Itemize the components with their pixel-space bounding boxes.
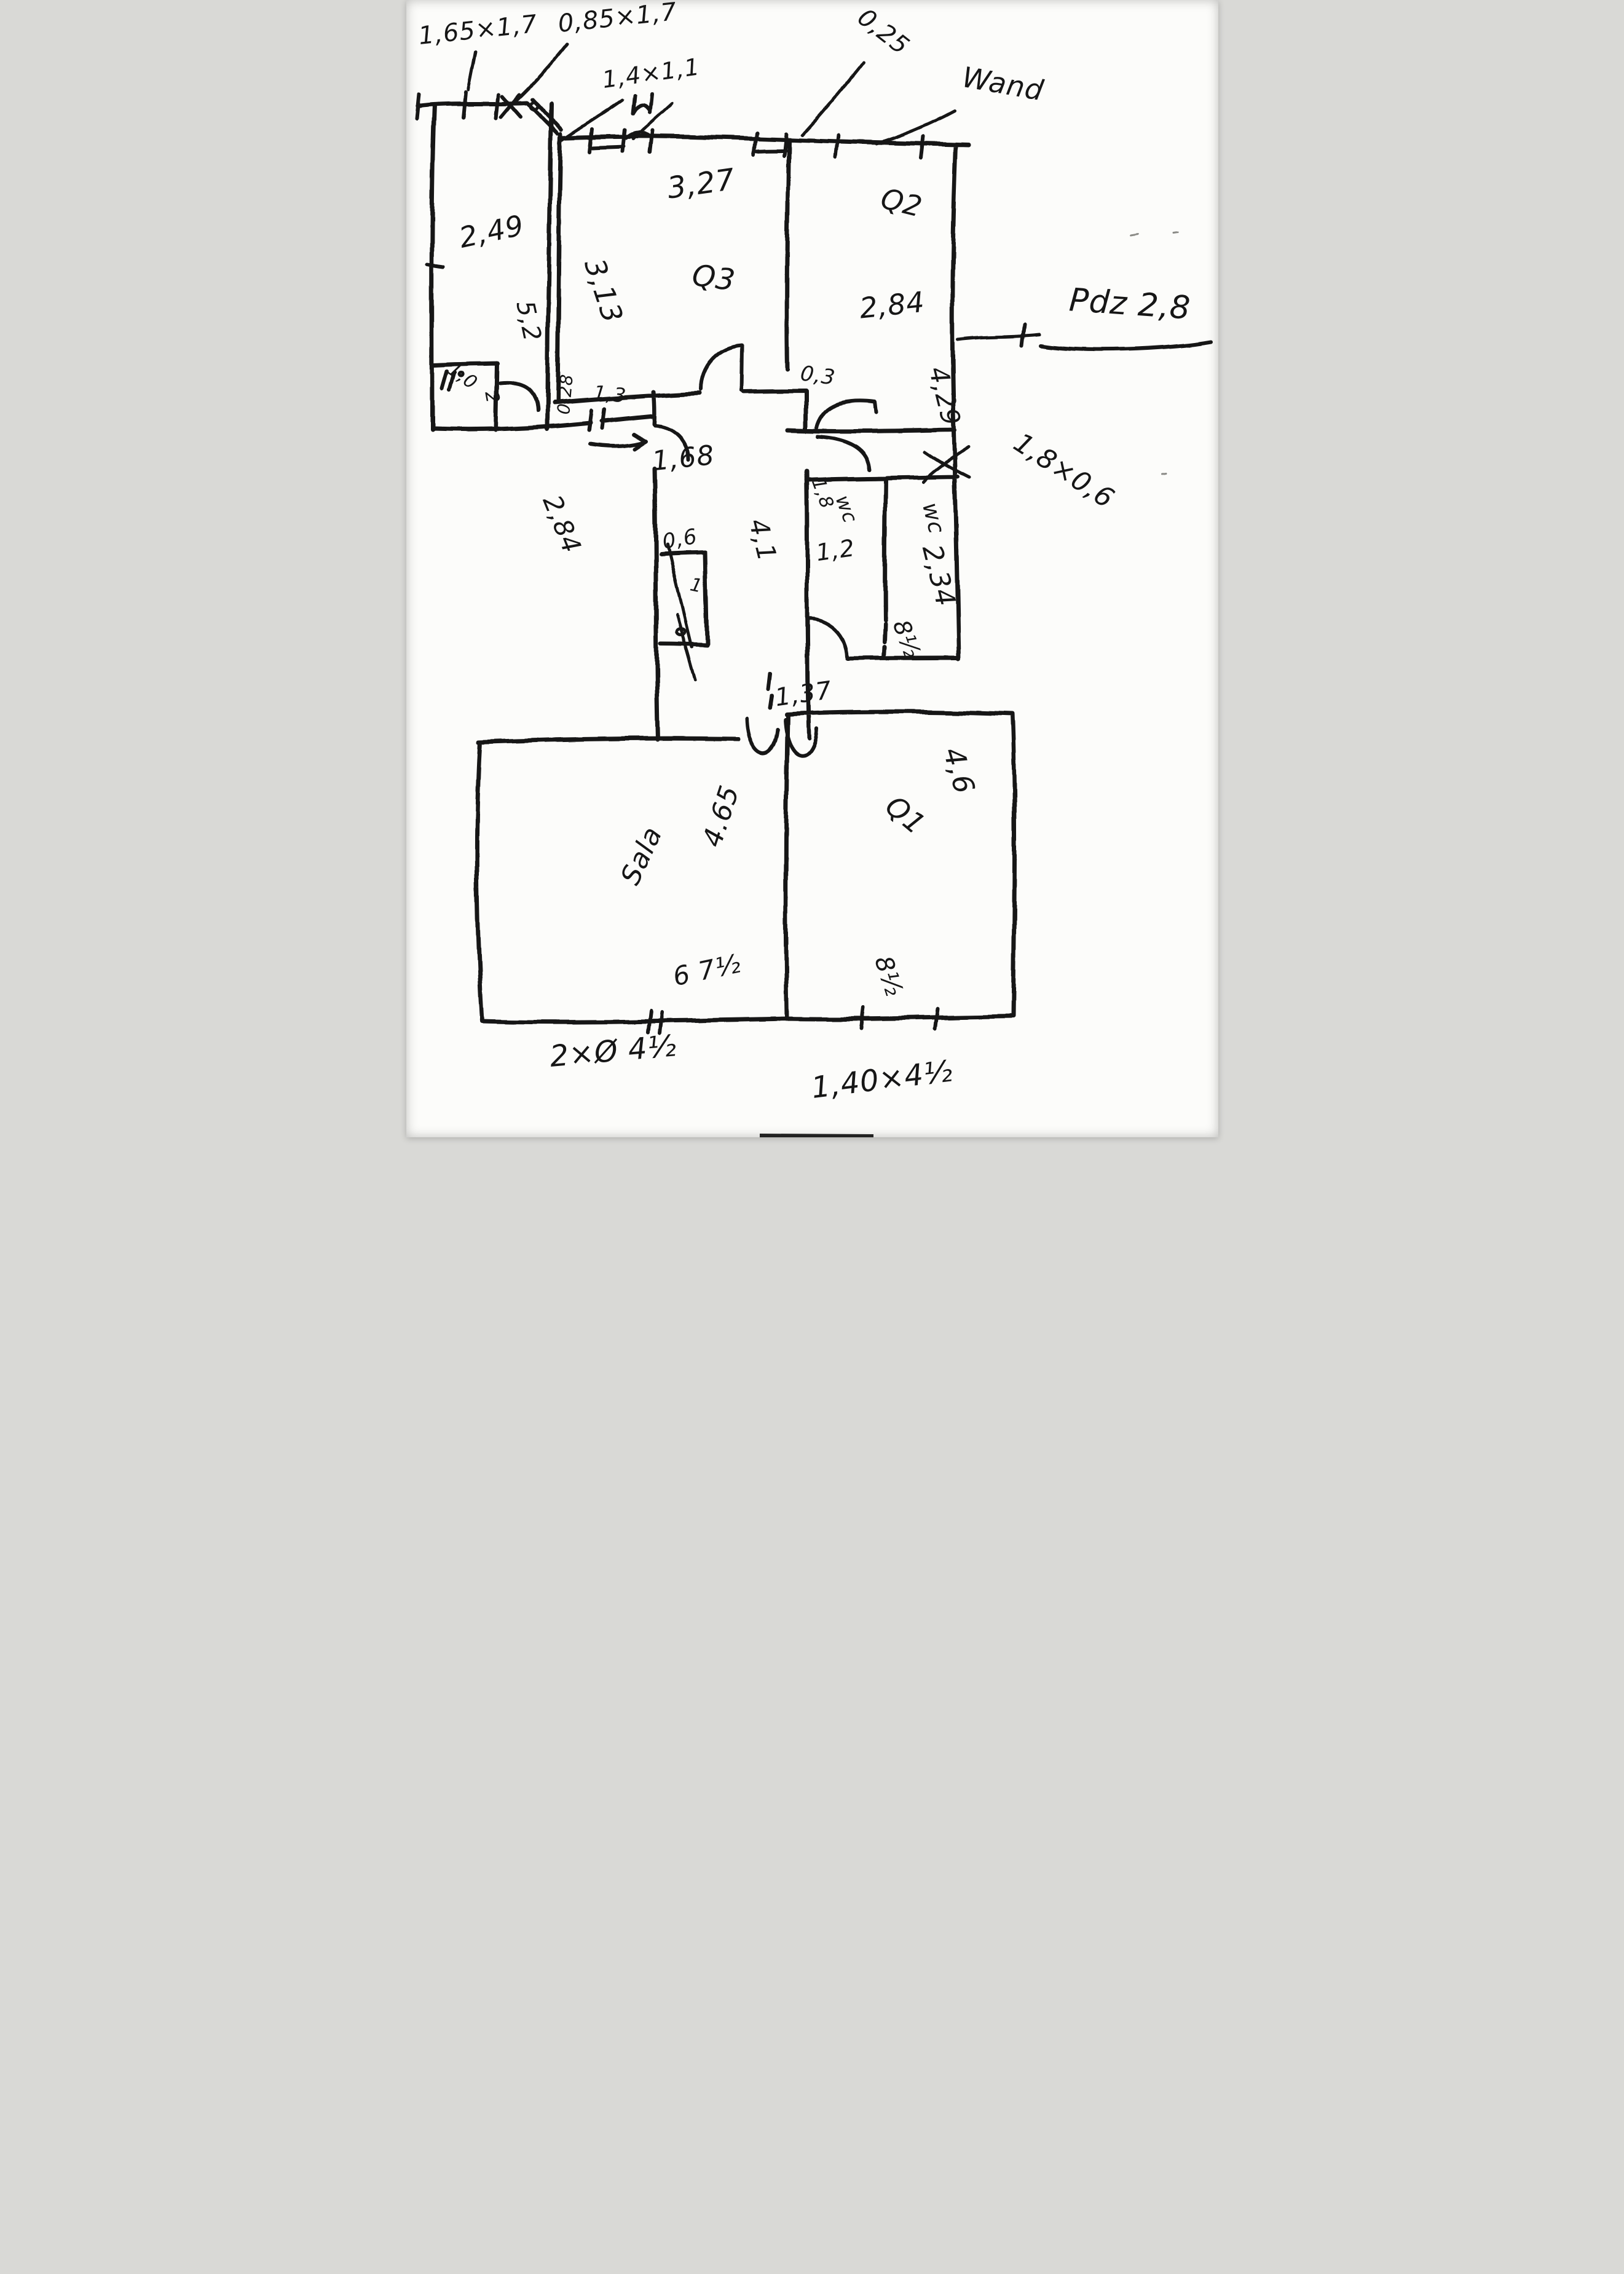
window-dim-a: 1,65×1,7 bbox=[417, 10, 538, 50]
dim-2-49: 2,49 bbox=[456, 208, 527, 255]
dim-2x0-4half: 2×Ø 4½ bbox=[548, 1028, 678, 1074]
dim-3-13: 3,13 bbox=[578, 255, 629, 327]
dim-1-37: 1,37 bbox=[773, 676, 834, 713]
dim-5-2: 5,2 bbox=[510, 298, 546, 344]
dim-0-28: 0,28 bbox=[553, 373, 577, 416]
dim-1-68: 1,68 bbox=[650, 440, 716, 477]
dim-1-40x4half: 1,40×4½ bbox=[809, 1054, 954, 1105]
stray-marks bbox=[1130, 232, 1177, 473]
labels-layer: 1,65×1,70,85×1,71,4×1,10,25WandPdz 2,82,… bbox=[417, 0, 1191, 1105]
dim-4-1: 4,1 bbox=[743, 516, 782, 565]
sala-label: Sala bbox=[615, 822, 669, 890]
room-q2-label: Q2 bbox=[877, 181, 926, 224]
dim-2-34: 2,34 bbox=[915, 542, 961, 610]
dim-2-84-q2: 2,84 bbox=[857, 285, 926, 325]
dim-0-25: 0,25 bbox=[852, 3, 915, 61]
dim-1-3: 1,3 bbox=[592, 381, 628, 407]
small-loops bbox=[459, 102, 685, 634]
dim-4-65: 4.65 bbox=[696, 781, 746, 851]
room-q3-label: Q3 bbox=[690, 258, 737, 298]
note-pdz: Pdz 2,8 bbox=[1068, 282, 1192, 327]
dim-0-3: 0,3 bbox=[798, 361, 837, 390]
wc-large-label: wc bbox=[917, 500, 949, 537]
window-dim-b: 0,85×1,7 bbox=[556, 0, 678, 38]
scan-edge-artifact bbox=[760, 1135, 873, 1136]
smallbox-2: 2 bbox=[480, 389, 503, 405]
page: 1,65×1,70,85×1,71,4×1,10,25WandPdz 2,82,… bbox=[0, 0, 1624, 1137]
q1-8half: 8½ bbox=[869, 952, 908, 1000]
paper-sheet: 1,65×1,70,85×1,71,4×1,10,25WandPdz 2,82,… bbox=[406, 0, 1218, 1137]
dim-1-8x0-6: 1,8×0,6 bbox=[1007, 427, 1119, 515]
wc-small-1-2: 1,2 bbox=[814, 534, 856, 566]
dim-4-6: 4,6 bbox=[936, 744, 981, 798]
window-dim-c: 1,4×1,1 bbox=[601, 53, 701, 93]
dim-2-84-corr: 2,84 bbox=[537, 491, 587, 558]
note-wand: Wand bbox=[960, 60, 1046, 107]
floor-plan-svg: 1,65×1,70,85×1,71,4×1,10,25WandPdz 2,82,… bbox=[406, 0, 1218, 1137]
dim-0-6: 0,6 bbox=[660, 524, 699, 555]
dim-4-29: 4,29 bbox=[923, 363, 966, 428]
closet-1: 1 bbox=[688, 574, 704, 598]
room-q1-label: Q1 bbox=[879, 789, 932, 841]
sala-6-7half: 6 7½ bbox=[670, 948, 743, 992]
wc-large-8half: 8½ bbox=[887, 616, 926, 661]
dim-3-27: 3,27 bbox=[664, 162, 737, 206]
